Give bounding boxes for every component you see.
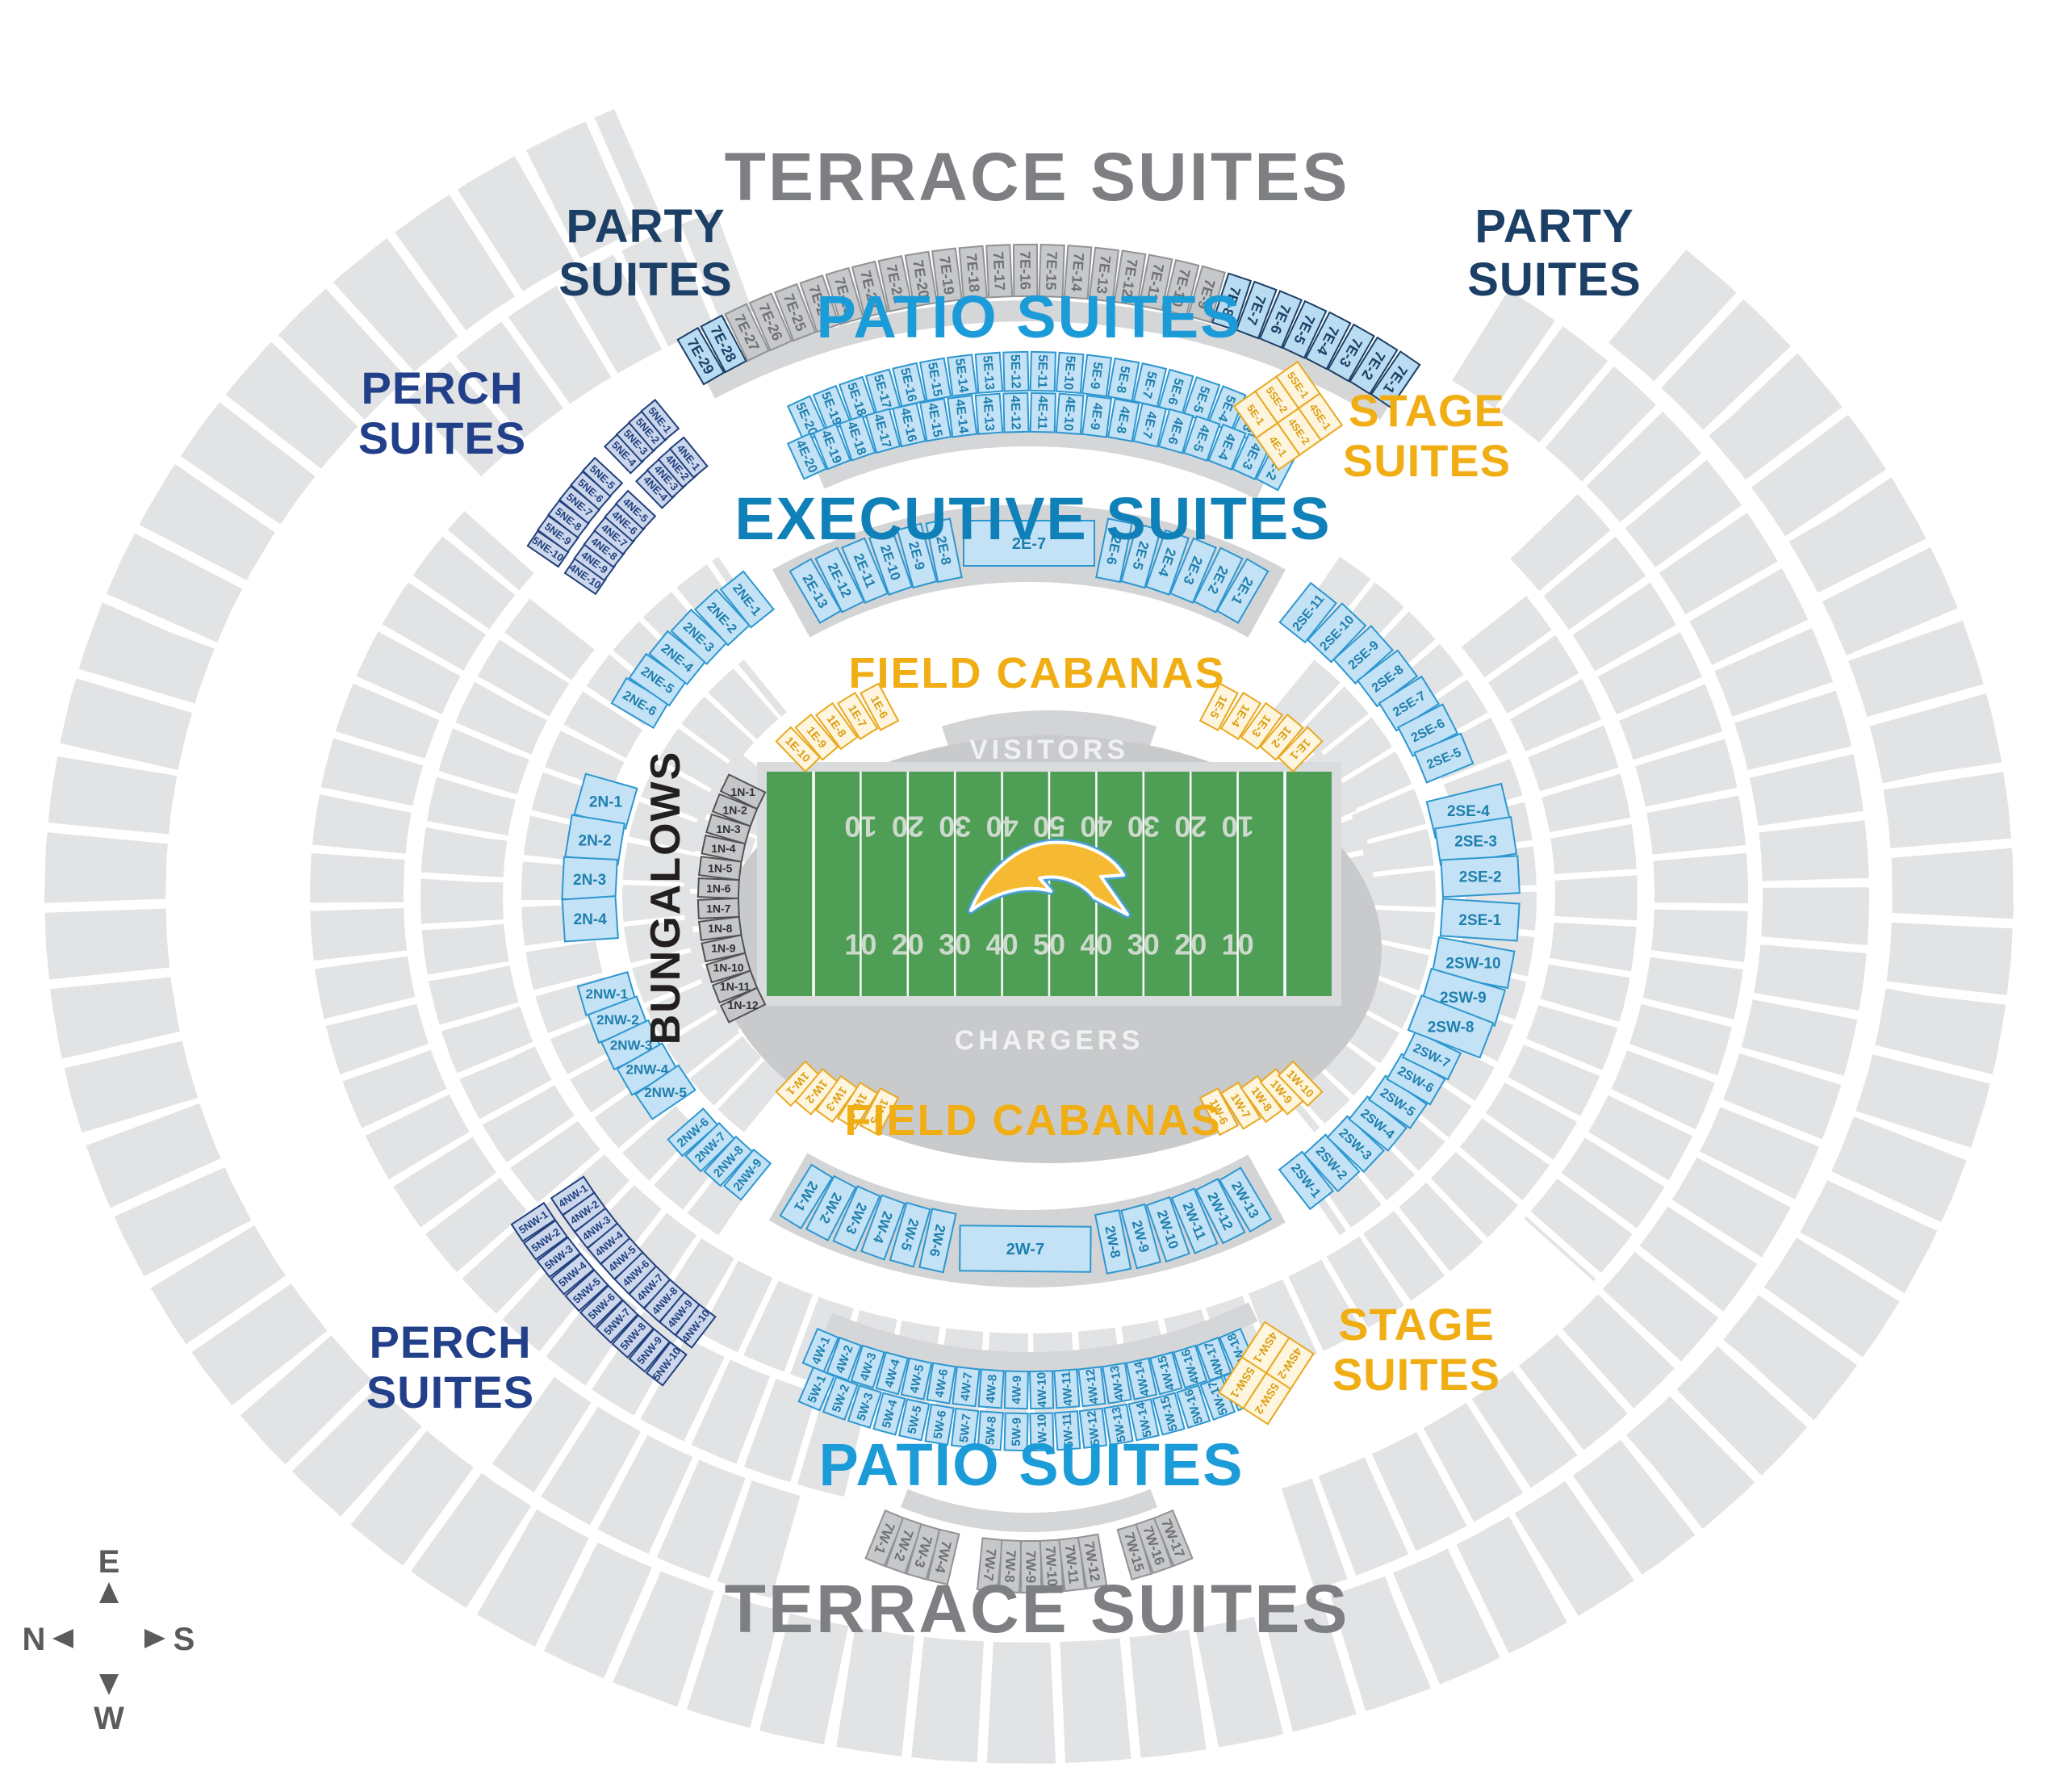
compass-rose: ENSW	[23, 1544, 195, 1736]
suite-label: 4E-13	[980, 396, 996, 432]
section-title-patio_bottom: PATIO SUITES	[819, 1431, 1244, 1498]
suite-label: 1N-2	[722, 804, 747, 817]
suite-label: 5E-12	[1008, 354, 1023, 389]
suite-label: 4W-11	[1060, 1371, 1076, 1406]
section-title-terrace_top: TERRACE SUITES	[725, 139, 1350, 215]
suite-4W-11[interactable]: 4W-11	[1054, 1369, 1079, 1408]
suite-5E-14[interactable]: 5E-14	[947, 354, 977, 396]
section-title-party_left: SUITES	[558, 253, 733, 306]
suite-label: 1N-10	[713, 961, 743, 974]
suite-label: 2SW-9	[1440, 990, 1487, 1007]
suite-4E-10[interactable]: 4E-10	[1056, 394, 1084, 434]
section-title-perch_top: SUITES	[358, 412, 526, 463]
section-title-stage_top: STAGE	[1349, 385, 1505, 436]
suite-4E-14[interactable]: 4E-14	[947, 396, 977, 437]
suite-label: 2SE-1	[1458, 912, 1501, 929]
suite-label: 2N-2	[579, 832, 612, 849]
suite-label: 2SE-3	[1454, 834, 1497, 851]
suite-2W-7[interactable]: 2W-7	[960, 1225, 1090, 1271]
suite-4E-11[interactable]: 4E-11	[1031, 393, 1056, 433]
compass-top-label: E	[98, 1544, 120, 1580]
yard-number-top: 30	[939, 810, 971, 843]
suite-1N-6[interactable]: 1N-6	[698, 878, 739, 898]
stadium-seat-map: 101020203030404050504040303020201010VISI…	[0, 0, 2058, 1792]
suite-label: 2NW-1	[586, 986, 629, 1002]
yard-number-top: 20	[1174, 810, 1207, 843]
section-title-text: BUNGALOWS	[642, 751, 689, 1045]
suite-label: 2N-4	[574, 911, 608, 928]
suite-4E-15[interactable]: 4E-15	[920, 399, 951, 442]
yard-number-bottom: 30	[1127, 928, 1160, 961]
section-title-cabanas_bottom: FIELD CABANAS	[845, 1096, 1222, 1145]
suite-5E-9[interactable]: 5E-9	[1082, 355, 1111, 396]
compass-left-label: N	[23, 1622, 46, 1657]
suite-1N-5[interactable]: 1N-5	[699, 856, 741, 880]
suite-label: 1N-9	[711, 942, 736, 955]
suite-label: 1N-6	[706, 882, 731, 895]
yard-number-bottom: 10	[844, 928, 876, 961]
suite-label: 4W-8	[984, 1374, 999, 1404]
yard-number-top: 40	[1080, 810, 1112, 843]
compass-right-label: S	[174, 1622, 195, 1657]
section-title-perch_bottom: PERCH	[369, 1317, 531, 1367]
chargers-sideline-label: CHARGERS	[955, 1025, 1144, 1056]
suite-label: 1N-11	[720, 980, 751, 993]
suite-4W-8[interactable]: 4W-8	[979, 1369, 1004, 1408]
suite-label: 2W-7	[1006, 1241, 1044, 1258]
section-title-cabanas_top: FIELD CABANAS	[849, 649, 1226, 697]
suite-label: 1N-8	[708, 922, 733, 935]
suite-label: 2SE-4	[1447, 803, 1490, 820]
suite-2SE-2[interactable]: 2SE-2	[1441, 856, 1520, 897]
suite-4W-7[interactable]: 4W-7	[952, 1367, 979, 1406]
suite-label: 4W-10	[1035, 1372, 1049, 1408]
section-title-party_right: PARTY	[1474, 200, 1633, 253]
suite-label: 1N-5	[708, 862, 733, 875]
section-title-patio_top: PATIO SUITES	[817, 283, 1242, 350]
yard-number-bottom: 40	[1080, 928, 1112, 961]
suite-label: 2SW-10	[1445, 955, 1500, 972]
suite-label: 1N-1	[730, 785, 755, 798]
suite-label: 1N-4	[711, 842, 736, 855]
suite-2SE-1[interactable]: 2SE-1	[1441, 898, 1520, 940]
yard-number-top: 10	[844, 810, 876, 843]
yard-number-bottom: 50	[1033, 928, 1065, 961]
suite-label: 1N-3	[716, 823, 741, 835]
yard-number-bottom: 10	[1222, 928, 1254, 961]
section-title-stage_top: SUITES	[1343, 435, 1511, 486]
suite-4E-12[interactable]: 4E-12	[1003, 393, 1028, 433]
yard-number-bottom: 20	[892, 928, 924, 961]
suite-2N-3[interactable]: 2N-3	[562, 857, 617, 902]
section-title-party_left: PARTY	[566, 200, 725, 253]
suite-4E-8[interactable]: 4E-8	[1108, 399, 1139, 442]
compass-west-arrow	[99, 1674, 119, 1695]
compass-north-arrow	[52, 1629, 73, 1648]
yard-number-bottom: 40	[986, 928, 1019, 961]
yard-number-top: 10	[1222, 810, 1254, 843]
suite-4E-13[interactable]: 4E-13	[976, 394, 1003, 434]
suite-label: 4E-11	[1035, 396, 1049, 429]
section-title-party_right: SUITES	[1467, 253, 1642, 306]
section-title-stage_bottom: STAGE	[1338, 1299, 1495, 1350]
compass-south-arrow	[144, 1629, 165, 1648]
suite-label: 2SE-2	[1459, 869, 1502, 886]
compass-east-arrow	[99, 1582, 119, 1603]
suite-label: 2NW-2	[596, 1012, 639, 1028]
suite-label: 5E-10	[1060, 355, 1077, 391]
walkway-band	[904, 1498, 1153, 1522]
section-title-terrace_bottom: TERRACE SUITES	[725, 1571, 1350, 1647]
suite-4E-9[interactable]: 4E-9	[1082, 396, 1111, 437]
suite-label: 4W-9	[1010, 1375, 1024, 1405]
section-title-perch_top: PERCH	[361, 362, 523, 413]
suite-label: 1N-12	[728, 999, 759, 1011]
suite-label: 5E-11	[1035, 354, 1049, 388]
suite-label: 2SW-8	[1428, 1019, 1474, 1036]
suite-1N-7[interactable]: 1N-7	[698, 898, 739, 919]
suite-label: 1N-7	[706, 902, 731, 915]
suite-label: 2NW-5	[644, 1085, 687, 1100]
suite-label: 4E-10	[1060, 396, 1077, 432]
suite-4W-12[interactable]: 4W-12	[1078, 1367, 1105, 1406]
suite-2N-4[interactable]: 2N-4	[563, 896, 618, 941]
yard-number-bottom: 30	[939, 928, 971, 961]
suite-label: 5E-13	[980, 355, 996, 391]
suite-5E-10[interactable]: 5E-10	[1056, 353, 1084, 393]
section-title-perch_bottom: SUITES	[366, 1367, 534, 1417]
yard-number-top: 50	[1033, 810, 1065, 843]
section-title-executive: EXECUTIVE SUITES	[734, 485, 1331, 552]
yard-number-top: 40	[986, 810, 1019, 843]
yard-number-top: 30	[1127, 810, 1160, 843]
compass-bottom-label: W	[94, 1701, 124, 1736]
yard-number-bottom: 20	[1174, 928, 1207, 961]
suite-5E-15[interactable]: 5E-15	[920, 358, 951, 401]
visitors-sideline-label: VISITORS	[969, 735, 1129, 765]
suite-label: 2NW-4	[626, 1061, 669, 1077]
suite-5E-8[interactable]: 5E-8	[1108, 358, 1139, 401]
section-title-bungalows: BUNGALOWS	[642, 751, 689, 1045]
suite-5E-13[interactable]: 5E-13	[976, 353, 1003, 393]
section-title-stage_bottom: SUITES	[1332, 1349, 1500, 1400]
suite-5E-12[interactable]: 5E-12	[1003, 352, 1028, 391]
yard-number-top: 20	[892, 810, 924, 843]
suite-5E-11[interactable]: 5E-11	[1031, 352, 1056, 391]
suite-label: 2N-1	[589, 793, 623, 810]
suite-4W-10[interactable]: 4W-10	[1030, 1371, 1053, 1409]
suite-label: 4E-12	[1008, 396, 1023, 430]
suite-4W-9[interactable]: 4W-9	[1005, 1371, 1028, 1409]
suite-label: 2N-3	[573, 872, 606, 889]
